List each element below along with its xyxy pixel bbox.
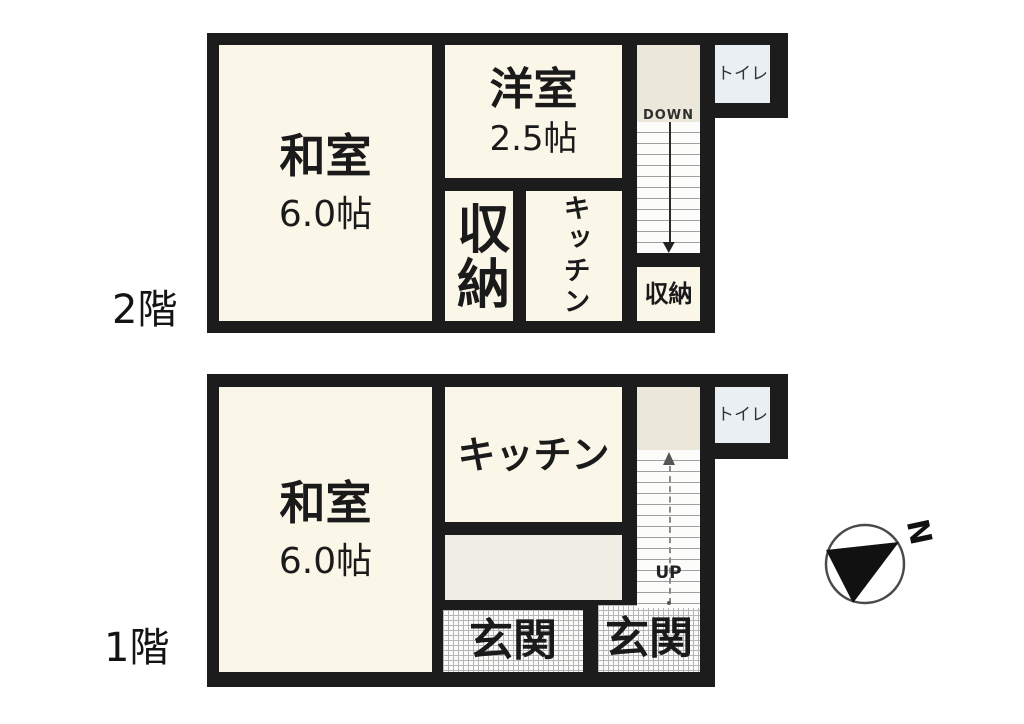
room-size: 2.5帖 — [489, 122, 577, 156]
staircase-2f — [637, 122, 700, 253]
stairs-center-line — [669, 466, 671, 604]
room-washitsu-2f: 和室 6.0帖 — [219, 45, 432, 321]
stairs-direction-label: UP — [637, 565, 700, 582]
room-name: キッチン — [457, 436, 609, 474]
room-washitsu-1f: 和室 6.0帖 — [219, 387, 432, 672]
stairs-direction-label: DOWN — [637, 109, 700, 122]
stairs-line-end-dot — [667, 601, 671, 605]
room-genkan-left-1f: 玄関 — [443, 610, 583, 672]
room-name: 収納 — [453, 201, 506, 311]
room-kitchen-2f: キッチン — [526, 191, 622, 321]
room-name: 洋室 — [490, 68, 578, 112]
stairs-center-line — [669, 122, 671, 246]
room-toilet-1f: トイレ — [715, 387, 770, 443]
room-name: キッチン — [561, 194, 588, 318]
stairs-landing-2f: DOWN — [637, 45, 700, 122]
room-name: 和室 — [280, 133, 372, 179]
compass-north-label: N — [899, 516, 938, 548]
room-closet-2f: 収納 — [445, 191, 513, 321]
stairs-up-arrow-icon — [663, 452, 675, 465]
room-name: 収納 — [645, 282, 693, 306]
stairs-landing-1f — [637, 387, 700, 450]
floor2-label: 2階 — [112, 290, 177, 330]
room-size: 6.0帖 — [279, 544, 372, 580]
compass-icon: N — [823, 512, 943, 612]
room-unlabeled-1f — [445, 535, 622, 600]
floor-plan-page: 2階 和室 6.0帖 洋室 2.5帖 収納 キッチン DOWN 収納 トイレ 1… — [0, 0, 1024, 724]
staircase-1f: UP — [637, 450, 700, 608]
stairs-down-arrow-icon — [662, 242, 674, 253]
room-genkan-right-1f: 玄関 — [598, 605, 700, 672]
room-yoshitsu-2f: 洋室 2.5帖 — [445, 45, 622, 178]
room-name: トイレ — [717, 407, 768, 424]
room-closet-under-stairs-2f: 収納 — [637, 267, 700, 321]
room-name: 玄関 — [469, 619, 557, 663]
floor1-label: 1階 — [104, 628, 169, 668]
room-name: 玄関 — [605, 617, 693, 661]
room-size: 6.0帖 — [279, 197, 372, 233]
room-name: 和室 — [280, 480, 372, 526]
room-name: トイレ — [717, 66, 768, 83]
room-kitchen-1f: キッチン — [445, 387, 622, 522]
room-toilet-2f: トイレ — [715, 45, 770, 103]
